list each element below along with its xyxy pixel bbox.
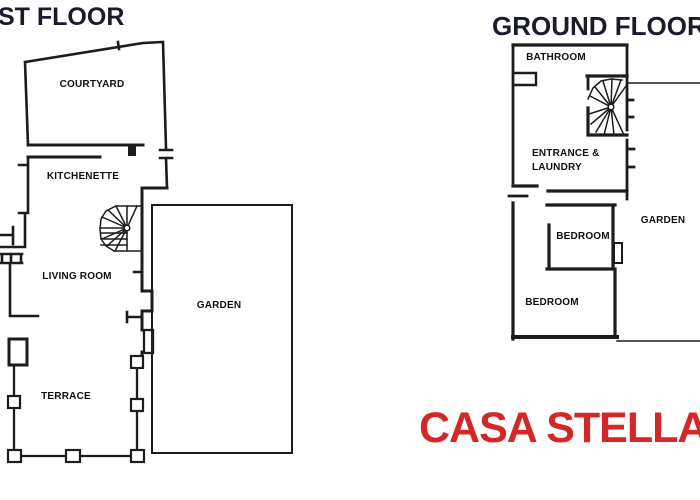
entrance-laundry-line2: LAUNDRY (532, 161, 600, 175)
entrance-laundry-line1: ENTRANCE & (532, 147, 600, 161)
spiral-staircase-icon (588, 79, 626, 135)
room-label-kitchenette: KITCHENETTE (23, 171, 143, 182)
spiral-staircase-icon (100, 206, 142, 251)
floor-plan-page: ST FLOOR GROUND FLOOR COURTYARD KITCHENE… (0, 0, 700, 500)
ground-floor-walls (509, 45, 634, 199)
bedroom-window (614, 243, 622, 263)
room-label-garden-ground-floor: GARDEN (603, 215, 700, 226)
terrace-railing (8, 356, 144, 462)
ground-floor-title: GROUND FLOOR (492, 11, 700, 42)
room-label-bathroom: BATHROOM (496, 52, 616, 63)
bathroom-door-jamb (513, 73, 536, 85)
room-label-courtyard: COURTYARD (32, 79, 152, 90)
room-label-terrace: TERRACE (6, 391, 126, 402)
room-label-bedroom-lower: BEDROOM (492, 297, 612, 308)
room-label-bedroom-upper: BEDROOM (523, 231, 643, 242)
terrace-pillar (9, 339, 27, 365)
ground-floor-thick-walls (513, 45, 627, 339)
first-floor-title: ST FLOOR (0, 3, 124, 32)
garden-outline (152, 205, 292, 453)
garden-boundary-lines (617, 83, 700, 341)
room-label-entrance-laundry: ENTRANCE & LAUNDRY (532, 147, 600, 174)
room-label-living-room: LIVING ROOM (17, 271, 137, 282)
wall-pier (128, 145, 136, 156)
property-name-caption: CASA STELLA (419, 404, 700, 453)
room-label-garden-first-floor: GARDEN (159, 300, 279, 311)
